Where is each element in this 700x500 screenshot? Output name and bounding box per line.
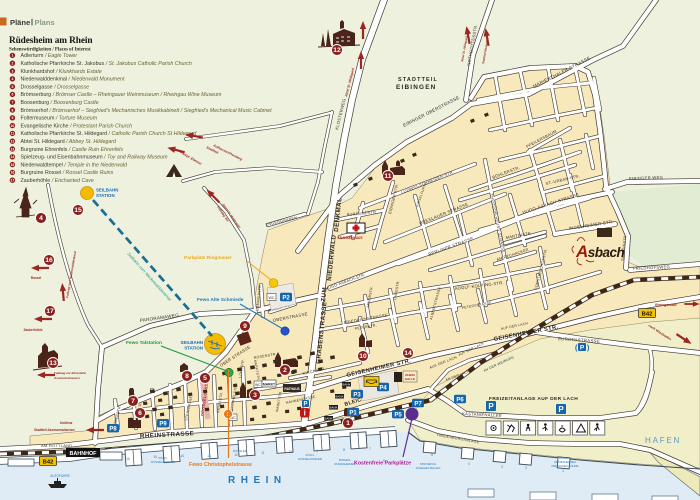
svg-text:Koblenz: Koblenz <box>60 421 73 425</box>
svg-text:STATION: STATION <box>96 193 115 198</box>
svg-text:Evangelische Kirche / Protesta: Evangelische Kirche / Protestant Parish … <box>21 123 133 129</box>
svg-text:8: 8 <box>185 373 189 380</box>
svg-text:P6: P6 <box>456 397 464 403</box>
svg-text:WC: WC <box>255 383 261 387</box>
svg-text:Parkplatz Ringmauer: Parkplatz Ringmauer <box>184 255 232 261</box>
svg-text:P: P <box>303 402 307 408</box>
svg-text:Drosselgasse / Drosselgasse: Drosselgasse / Drosselgasse <box>21 84 90 90</box>
svg-text:HAFEN: HAFEN <box>645 436 681 445</box>
svg-text:Spielzeug- und Eisenbahnmuseum: Spielzeug- und Eisenbahnmuseum / Toy and… <box>21 155 169 161</box>
svg-text:5: 5 <box>11 85 13 89</box>
svg-text:P5: P5 <box>394 412 402 418</box>
svg-text:13: 13 <box>207 454 211 458</box>
svg-text:Sehenswürdigkeiten / Places of: Sehenswürdigkeiten / Places of Interest <box>9 48 91 53</box>
svg-text:P: P <box>558 405 564 414</box>
svg-text:10: 10 <box>359 353 367 360</box>
svg-text:Katholische Pfarrkirche St. Ja: Katholische Pfarrkirche St. Jakobus / St… <box>21 61 192 67</box>
svg-text:SEILBAHN: SEILBAHN <box>96 188 118 193</box>
svg-text:Rossel: Rossel <box>31 276 42 280</box>
svg-text:1: 1 <box>346 420 350 427</box>
svg-text:11: 11 <box>261 451 265 455</box>
svg-text:9: 9 <box>243 323 247 330</box>
svg-text:P: P <box>580 345 585 352</box>
svg-text:STADTTEIL: STADTTEIL <box>398 77 438 83</box>
svg-text:11: 11 <box>11 132 15 136</box>
svg-text:B42: B42 <box>43 459 54 465</box>
svg-text:3: 3 <box>253 392 257 399</box>
svg-text:Fußweg zur Ehrenfels/: Fußweg zur Ehrenfels/ <box>54 371 87 375</box>
svg-text:3: 3 <box>11 69 13 73</box>
svg-text:Zauberhöhle: Zauberhöhle <box>23 328 42 332</box>
svg-text:7: 7 <box>369 447 371 451</box>
svg-text:B42: B42 <box>642 311 653 317</box>
svg-text:RATHAUS: RATHAUS <box>284 387 299 391</box>
svg-text:Kostenfreie Parkplätze: Kostenfreie Parkplätze <box>354 461 411 467</box>
svg-text:8: 8 <box>11 108 13 112</box>
svg-text:16: 16 <box>45 257 53 264</box>
svg-text:RÜDESHEIMER: RÜDESHEIMER <box>334 462 355 466</box>
svg-text:Assmannshausen: Assmannshausen <box>53 376 80 380</box>
svg-text:8: 8 <box>343 448 345 452</box>
svg-text:BANK: BANK <box>324 417 332 421</box>
svg-text:6: 6 <box>138 410 142 417</box>
svg-text:Niederwalddenkmal / Niederwald: Niederwalddenkmal / Niederwald Monument <box>21 77 125 83</box>
svg-text:P3: P3 <box>353 392 361 398</box>
svg-text:Burgruine Ehrenfels / Castle R: Burgruine Ehrenfels / Castle Ruin Ehrenf… <box>21 147 124 153</box>
svg-text:4: 4 <box>39 215 43 222</box>
svg-text:4: 4 <box>11 77 13 81</box>
svg-text:15: 15 <box>153 455 157 459</box>
svg-text:PERSONEN-FÄHRE: PERSONEN-FÄHRE <box>552 464 579 468</box>
svg-text:5: 5 <box>203 375 207 382</box>
svg-text:Brömserburg / Brömser Castle –: Brömserburg / Brömser Castle – Rheingaue… <box>21 92 223 98</box>
svg-text:1: 1 <box>11 54 13 58</box>
svg-text:AM ROTTLAND: AM ROTTLAND <box>41 443 72 448</box>
svg-text:FREIZEITANLAGE AUF DER LACH: FREIZEITANLAGE AUF DER LACH <box>489 396 578 402</box>
svg-text:6: 6 <box>11 93 13 97</box>
svg-text:MARKT: MARKT <box>263 382 276 386</box>
svg-text:KRANKENHAUS: KRANKENHAUS <box>338 236 363 240</box>
svg-text:Asbach: Asbach <box>575 242 625 261</box>
svg-text:3: 3 <box>501 465 503 469</box>
svg-text:7: 7 <box>11 101 13 105</box>
svg-text:DÜSSELDORFER: DÜSSELDORFER <box>298 457 322 461</box>
svg-text:Fewo Talstation: Fewo Talstation <box>126 340 162 346</box>
svg-text:ANLEGESTELLEN: ANLEGESTELLEN <box>416 466 441 470</box>
svg-text:Pläne: Pläne <box>10 18 30 27</box>
svg-text:Zauberhöhle / Enchanted Cave: Zauberhöhle / Enchanted Cave <box>21 178 94 184</box>
svg-text:9: 9 <box>11 116 13 120</box>
svg-text:P4: P4 <box>379 385 387 391</box>
svg-text:2: 2 <box>11 62 13 66</box>
svg-text:14: 14 <box>11 155 15 159</box>
svg-text:P7: P7 <box>414 401 422 407</box>
svg-text:): ) <box>587 345 589 352</box>
svg-text:12: 12 <box>234 453 238 457</box>
svg-text:EIBINGEN: EIBINGEN <box>396 84 437 91</box>
svg-text:12: 12 <box>11 140 15 144</box>
svg-text:P2: P2 <box>282 295 290 301</box>
svg-text:7: 7 <box>131 398 135 405</box>
svg-text:17: 17 <box>46 308 54 315</box>
svg-text:Foltermuseum / Torture Museum: Foltermuseum / Torture Museum <box>21 116 98 122</box>
svg-text:BANK: BANK <box>335 395 343 399</box>
svg-text:Rüdesheim am Rhein: Rüdesheim am Rhein <box>9 36 93 46</box>
svg-text:5: 5 <box>431 453 433 457</box>
svg-text:DÜSSELDORFER: DÜSSELDORFER <box>151 460 175 464</box>
svg-text:Katholische Pfarrkirche St. Hi: Katholische Pfarrkirche St. Hildegard / … <box>21 131 198 137</box>
svg-text:SEILBAHN: SEILBAHN <box>181 340 203 345</box>
svg-text:14: 14 <box>404 350 412 357</box>
svg-text:1: 1 <box>562 469 564 473</box>
svg-text:STATION: STATION <box>184 346 203 351</box>
svg-text:16: 16 <box>11 171 15 175</box>
svg-text:2: 2 <box>525 466 527 470</box>
svg-text:HALLE: HALLE <box>405 377 415 381</box>
svg-text:2: 2 <box>283 367 287 374</box>
svg-text:15: 15 <box>74 207 82 214</box>
svg-text:13: 13 <box>11 147 15 151</box>
svg-text:Stadtteil Assmannshausen: Stadtteil Assmannshausen <box>34 428 75 432</box>
svg-text:9: 9 <box>316 449 318 453</box>
svg-text:P1: P1 <box>349 410 357 416</box>
svg-text:BANK: BANK <box>342 383 350 387</box>
svg-text:16: 16 <box>126 457 130 461</box>
svg-text:Niederwaldtempel / Temple in t: Niederwaldtempel / Temple in the Niederw… <box>21 162 128 168</box>
svg-text:12: 12 <box>333 47 341 54</box>
svg-text:WC: WC <box>269 296 275 300</box>
svg-text:BANK: BANK <box>329 406 337 410</box>
svg-text:Fewo Alte Schmiede: Fewo Alte Schmiede <box>197 297 244 303</box>
svg-text:15: 15 <box>11 163 15 167</box>
svg-text:Klunkhardshof / Klunkhards Est: Klunkhardshof / Klunkhards Estate <box>21 69 102 75</box>
svg-text:RHEIN: RHEIN <box>228 475 287 486</box>
svg-text:4: 4 <box>468 462 470 466</box>
svg-text:10: 10 <box>11 124 15 128</box>
svg-text:10: 10 <box>288 450 292 454</box>
svg-text:Abtei St. Hildegard / Abbey St: Abtei St. Hildegard / Abbey St. Hildegar… <box>21 139 118 145</box>
svg-text:Boosenburg / Boosenburg Castle: Boosenburg / Boosenburg Castle <box>21 100 99 106</box>
svg-text:Adlerturm / Eagle Tower: Adlerturm / Eagle Tower <box>21 53 78 59</box>
svg-text:13: 13 <box>49 360 57 367</box>
svg-text:BAHNHOF: BAHNHOF <box>70 451 98 457</box>
svg-text:Brömserhof / Brömserhof – Sieg: Brömserhof / Brömserhof – Siegfried's Me… <box>21 108 273 114</box>
svg-text:AUTOFÄHRE: AUTOFÄHRE <box>50 474 70 478</box>
svg-text:Fewo Christophelstrasse: Fewo Christophelstrasse <box>189 462 252 468</box>
svg-text:17: 17 <box>11 179 15 183</box>
svg-text:Burgruine Rossel / Rossel Cast: Burgruine Rossel / Rossel Castle Ruins <box>21 170 114 176</box>
svg-text:11: 11 <box>384 173 391 180</box>
svg-text:P: P <box>488 402 494 411</box>
svg-text:P9: P9 <box>159 422 167 428</box>
svg-text:14: 14 <box>180 454 184 458</box>
svg-text:i: i <box>304 409 306 418</box>
svg-text:Rheingaubad: Rheingaubad <box>655 303 677 307</box>
svg-text:Plans: Plans <box>35 18 55 27</box>
svg-text:P8: P8 <box>109 427 117 433</box>
